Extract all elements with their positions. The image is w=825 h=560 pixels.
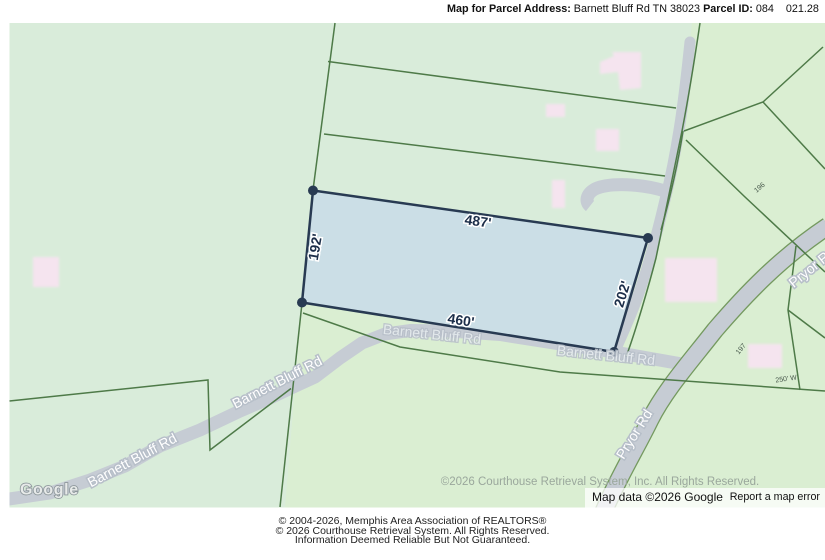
svg-text:Map data ©2026 Google: Map data ©2026 Google <box>592 490 723 504</box>
svg-text:Report a map error: Report a map error <box>730 491 821 503</box>
svg-text:©2026 Courthouse Retrieval Sys: ©2026 Courthouse Retrieval System, Inc. … <box>441 476 759 488</box>
svg-text:Google: Google <box>20 482 79 499</box>
